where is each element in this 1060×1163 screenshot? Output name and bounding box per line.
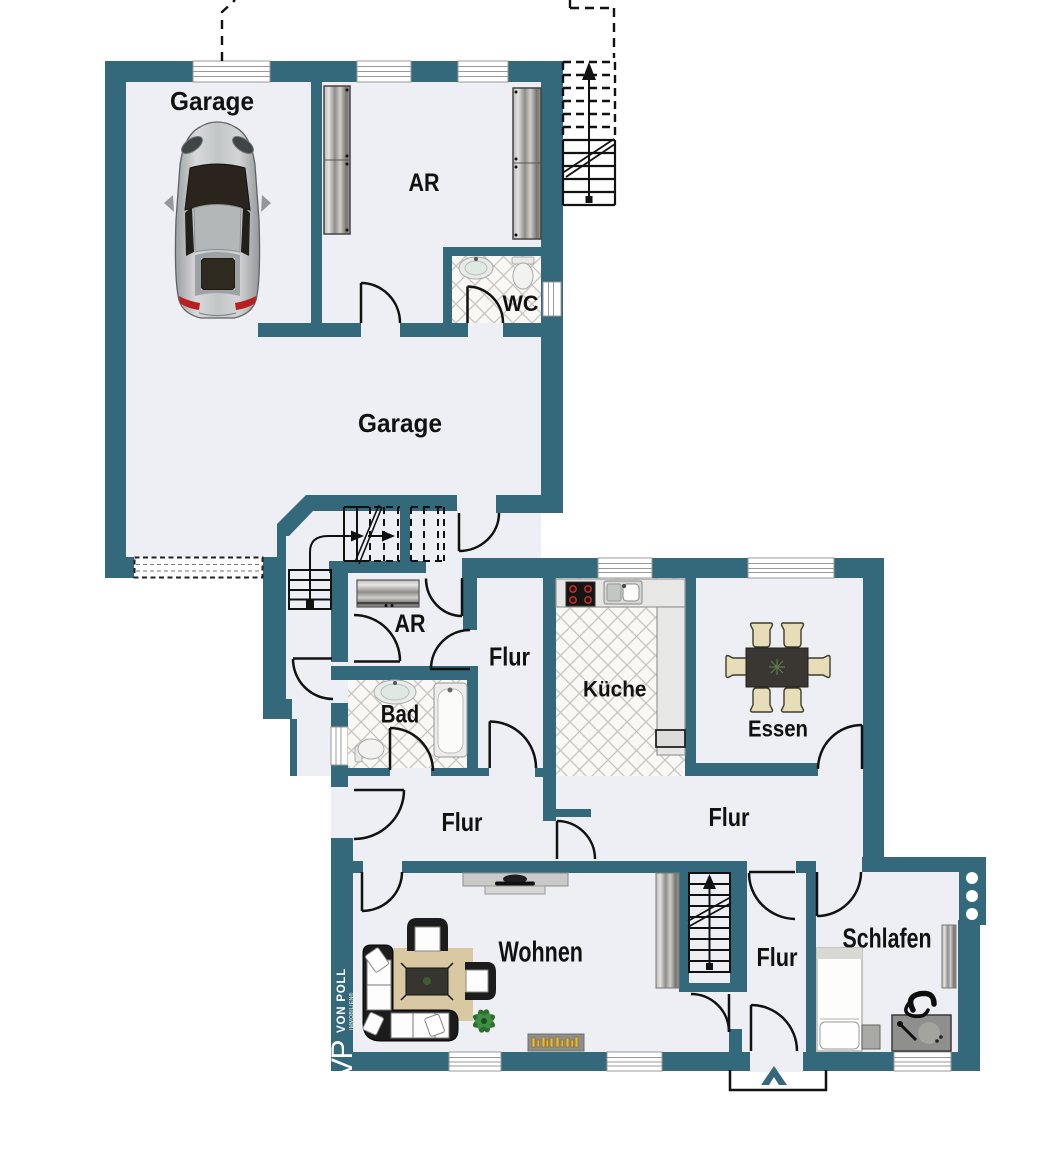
svg-text:VON POLL: VON POLL [336, 968, 348, 1033]
svg-text:AR: AR [409, 169, 440, 197]
svg-text:Küche: Küche [583, 676, 647, 701]
svg-text:VP: VP [326, 1040, 359, 1078]
svg-text:Essen: Essen [748, 715, 808, 741]
svg-text:Garage: Garage [170, 86, 254, 116]
svg-text:Flur: Flur [709, 802, 750, 832]
svg-text:Flur: Flur [489, 642, 530, 672]
svg-text:Bad: Bad [381, 701, 420, 729]
svg-text:Wohnen: Wohnen [498, 936, 583, 968]
svg-text:AR: AR [395, 610, 426, 638]
svg-text:WC: WC [503, 291, 539, 316]
svg-text:Flur: Flur [757, 942, 798, 972]
svg-text:Flur: Flur [442, 807, 483, 837]
svg-text:IMMOBILIEN®: IMMOBILIEN® [348, 992, 355, 1030]
svg-text:Garage: Garage [358, 408, 442, 438]
